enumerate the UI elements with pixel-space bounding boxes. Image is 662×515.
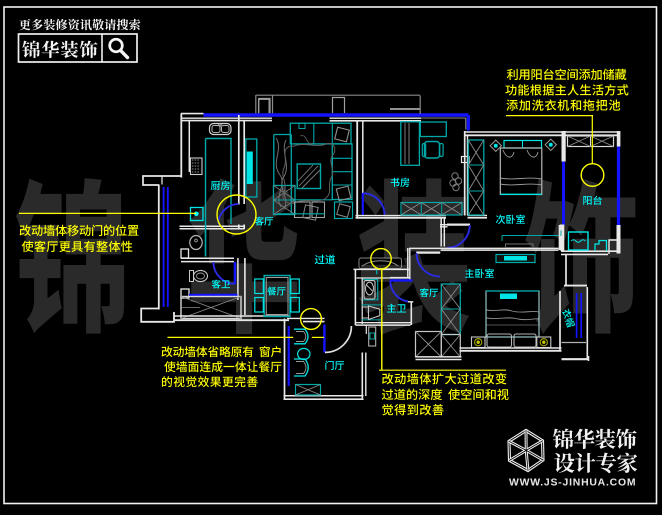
svg-text:WWW.JS-JINHUA.COM: WWW.JS-JINHUA.COM (509, 478, 636, 489)
